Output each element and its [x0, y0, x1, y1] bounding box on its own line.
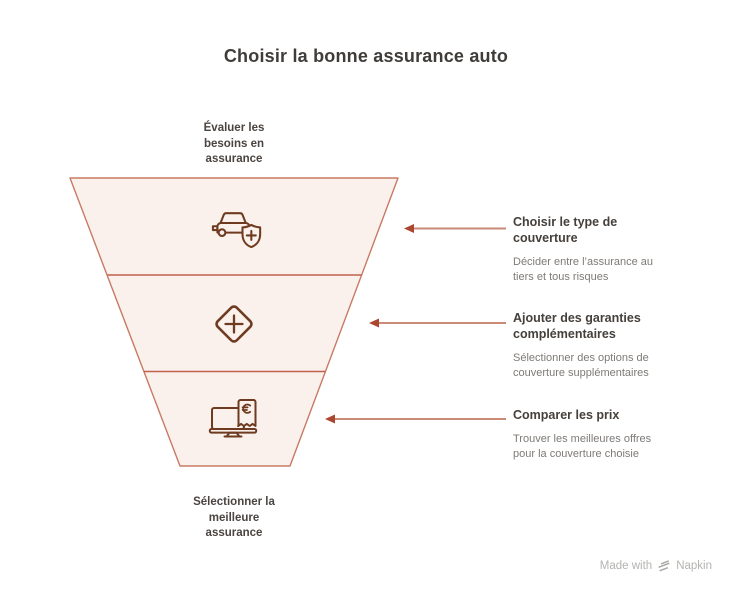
- arrow-left-icon: [369, 319, 379, 328]
- step-description: Trouver les meilleures offres pour la co…: [513, 432, 671, 462]
- funnel-diagram: [0, 0, 732, 600]
- arrow-left-icon: [325, 415, 335, 424]
- step-heading: Comparer les prix: [513, 408, 671, 424]
- step-block-1: Choisir le type de couverture Décider en…: [513, 215, 671, 285]
- funnel-bottom-label: Sélectionner la meilleure assurance: [182, 495, 286, 542]
- made-with-napkin-link[interactable]: Made with Napkin: [600, 559, 712, 573]
- step-heading: Choisir le type de couverture: [513, 215, 671, 247]
- napkin-brand-text: Napkin: [676, 560, 712, 572]
- step-description: Décider entre l’assurance au tiers et to…: [513, 255, 671, 285]
- napkin-flash-icon: [657, 559, 671, 573]
- made-with-text: Made with: [600, 560, 652, 572]
- step-block-2: Ajouter des garanties complémentaires Sé…: [513, 311, 671, 381]
- arrow-step-2: [369, 319, 506, 328]
- step-block-3: Comparer les prix Trouver les meilleures…: [513, 408, 671, 462]
- step-heading: Ajouter des garanties complémentaires: [513, 311, 671, 343]
- step-description: Sélectionner des options de couverture s…: [513, 351, 671, 381]
- arrow-step-3: [325, 415, 506, 424]
- arrow-left-icon: [404, 224, 414, 233]
- infographic-canvas: Choisir la bonne assurance auto Évaluer …: [0, 0, 732, 600]
- arrow-step-1: [404, 224, 506, 233]
